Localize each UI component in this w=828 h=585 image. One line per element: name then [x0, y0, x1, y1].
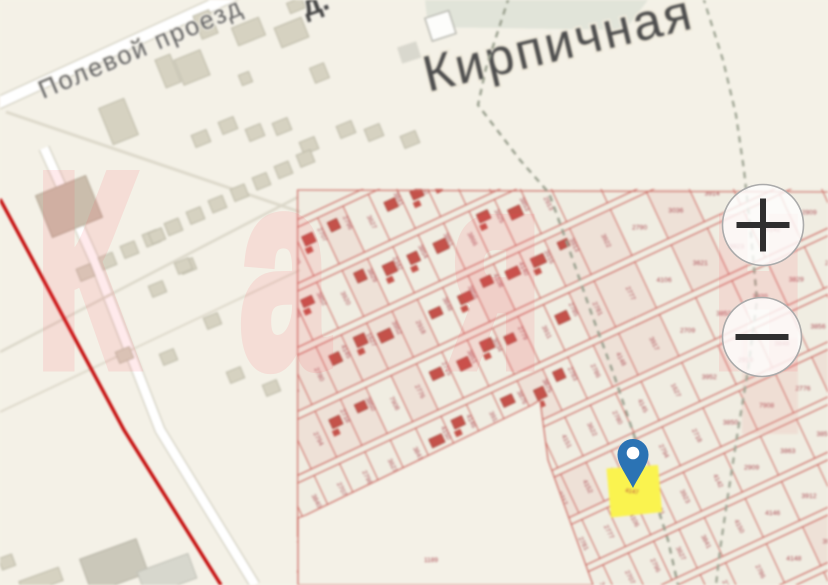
svg-text:н: н [712, 118, 805, 424]
svg-text:К: К [36, 116, 137, 423]
svg-text:а: а [240, 118, 329, 424]
svg-text:я: я [451, 118, 541, 424]
